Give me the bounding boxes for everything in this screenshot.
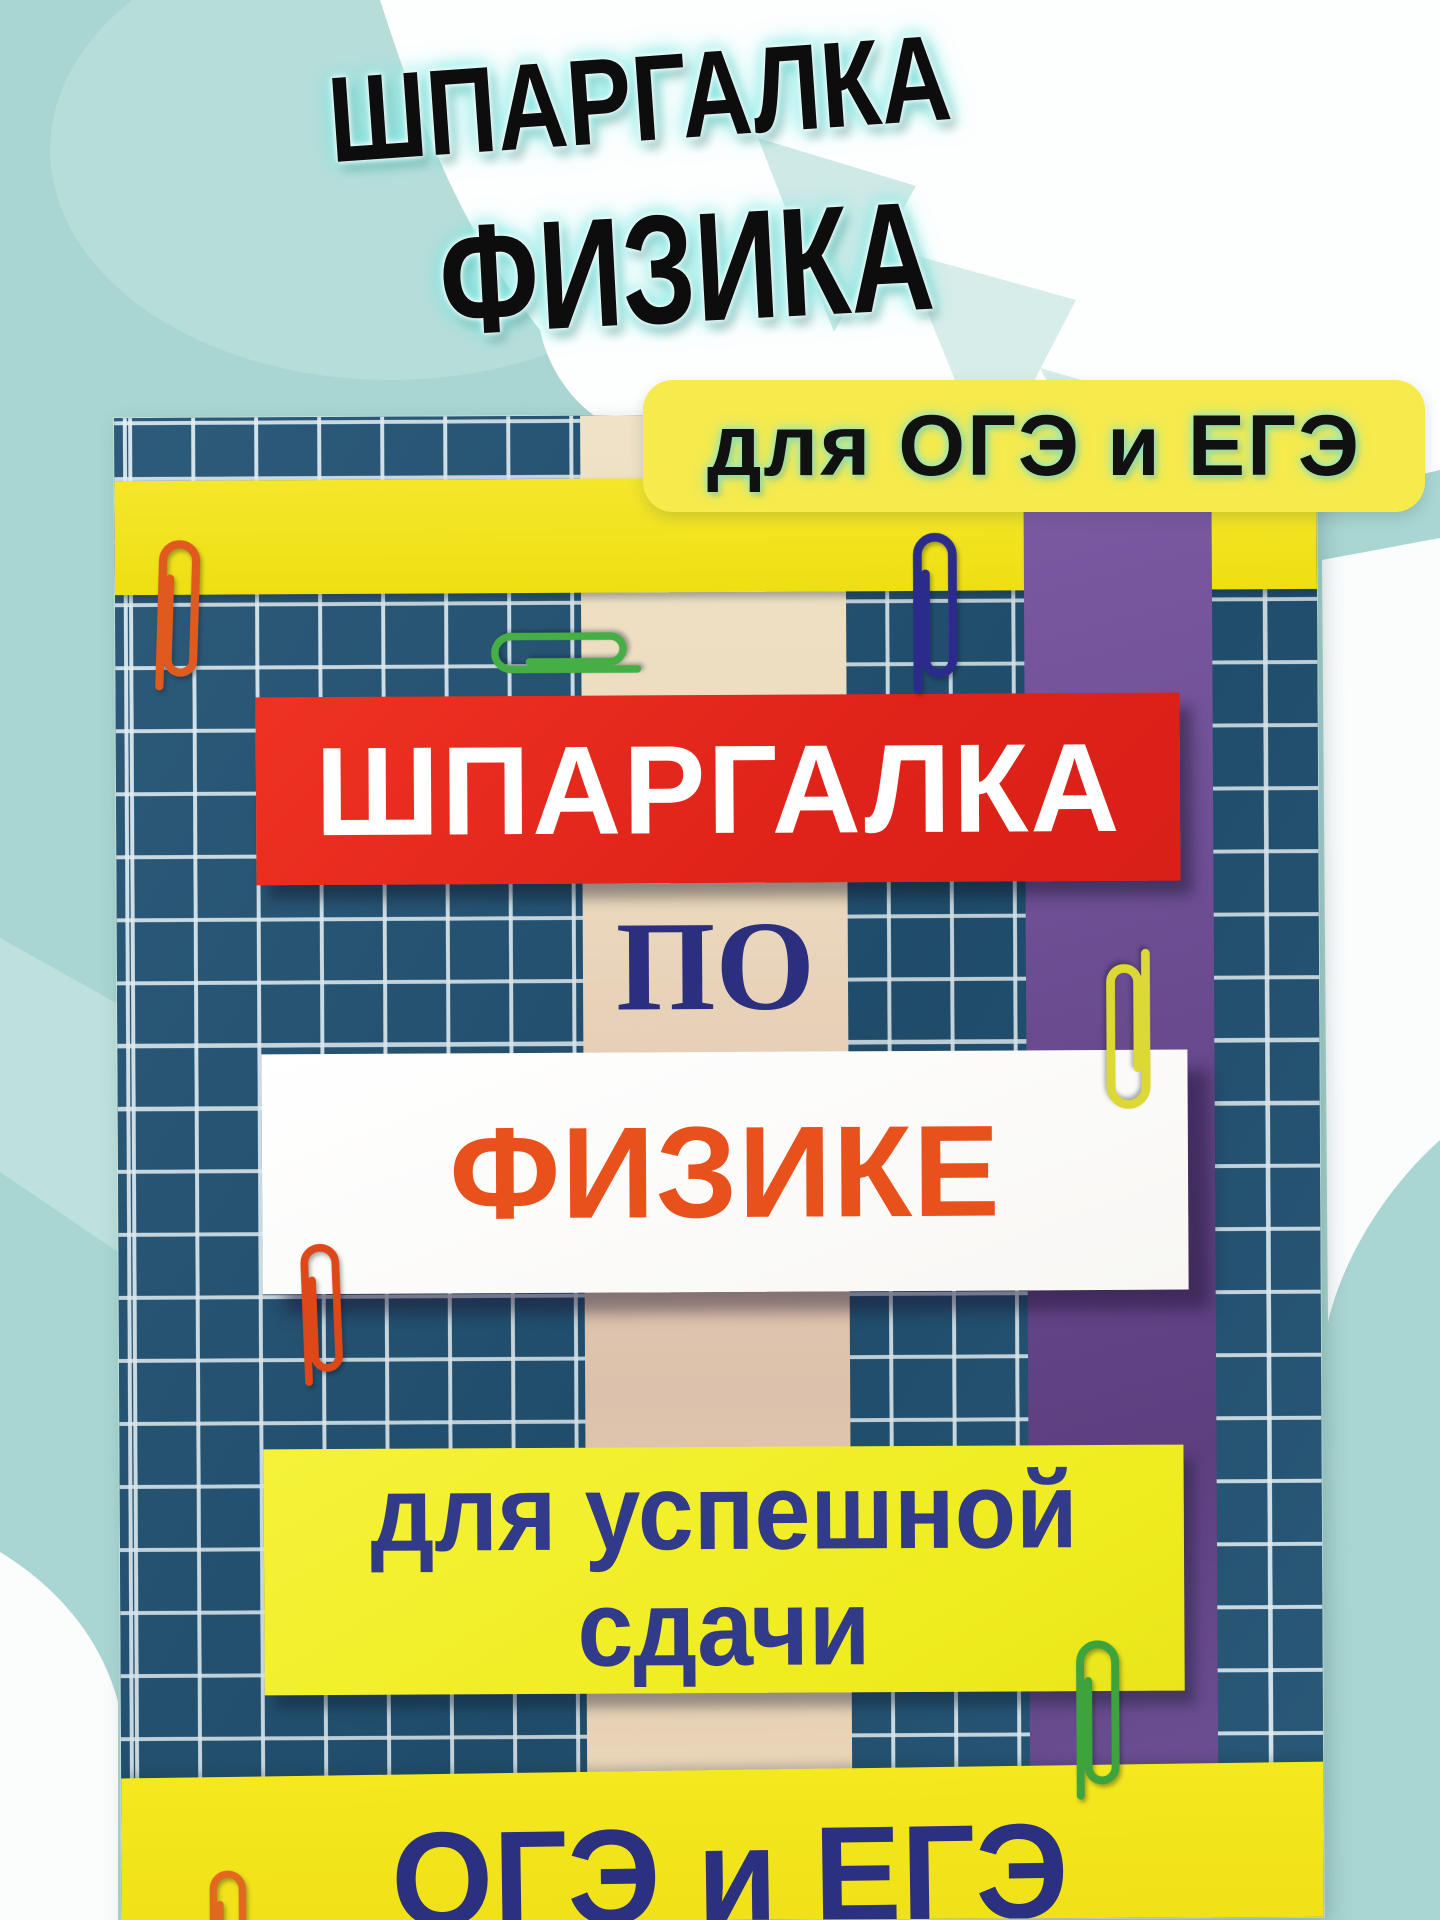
red-banner-text: ШПАРГАЛКА bbox=[315, 714, 1122, 863]
slogan-banner: для успешной сдачи bbox=[263, 1445, 1184, 1696]
orange-paperclip-icon bbox=[142, 520, 213, 704]
subject-text: ФИЗИКЕ bbox=[449, 1096, 1001, 1249]
yellow-paperclip-icon bbox=[1093, 943, 1164, 1123]
po-label: ПО bbox=[583, 892, 849, 1040]
promo-title-line2-text: ФИЗИКА bbox=[435, 167, 938, 371]
product-image: ОГЭ и ЕГЭ ШПАРГАЛКА ПО ФИЗИКЕ для успешн… bbox=[0, 0, 1440, 1920]
green-paperclip-icon bbox=[472, 619, 652, 686]
green-paperclip2-icon bbox=[1062, 1626, 1133, 1806]
subject-card: ФИЗИКЕ bbox=[261, 1050, 1188, 1295]
exam-badge-label: для ОГЭ и ЕГЭ bbox=[707, 397, 1361, 496]
slogan-line2: сдачи bbox=[578, 1569, 872, 1687]
red-paperclip-icon bbox=[287, 1221, 356, 1401]
slogan-line1: для успешной bbox=[370, 1452, 1078, 1572]
navy-paperclip-icon bbox=[900, 511, 971, 707]
orange-paperclip2-icon bbox=[199, 1858, 258, 1920]
exams-text: ОГЭ и ЕГЭ bbox=[390, 1793, 1069, 1920]
red-title-banner: ШПАРГАЛКА bbox=[256, 693, 1181, 886]
promo-title-line2: ФИЗИКА bbox=[353, 163, 1001, 374]
book-cover: ОГЭ и ЕГЭ ШПАРГАЛКА ПО ФИЗИКЕ для успешн… bbox=[114, 412, 1324, 1920]
bottom-yellow-band: ОГЭ и ЕГЭ bbox=[114, 1761, 1324, 1920]
exam-badge: для ОГЭ и ЕГЭ bbox=[643, 380, 1425, 512]
